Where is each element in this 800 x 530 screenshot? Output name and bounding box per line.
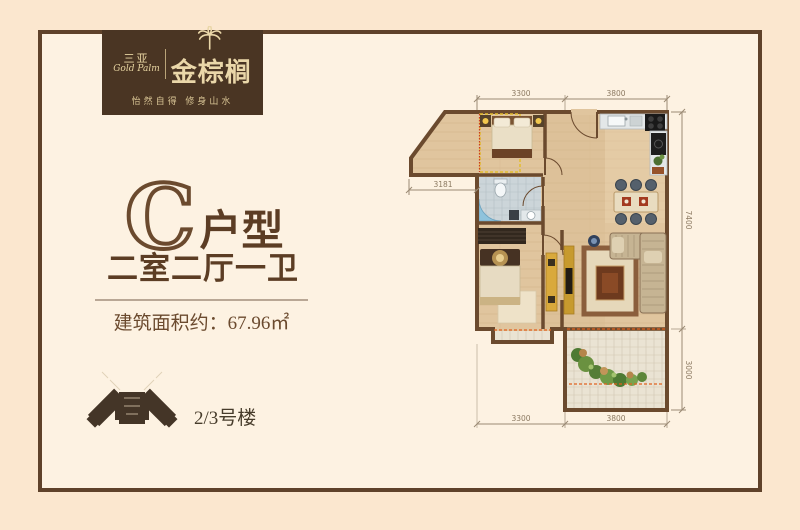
lamp-icon [483, 118, 489, 124]
kitchen-sink-icon [608, 116, 625, 126]
stool-icon [646, 180, 657, 191]
dining-table-icon [614, 192, 658, 212]
balcony-small [494, 331, 551, 341]
area-value: 67.96㎡ [228, 313, 290, 334]
dim-top-right: 3800 [606, 89, 625, 98]
brand-name-cn: 金棕榈 [171, 58, 252, 88]
dim-left: 3181 [433, 180, 452, 189]
stool-icon [631, 214, 642, 225]
stool-icon [616, 180, 627, 191]
dim-right-upper: 7400 [684, 210, 693, 229]
rooms-description: 二室二厅一卫 [88, 243, 318, 288]
stove-icon [645, 114, 665, 131]
flyer-page: 三亚 Gold Palm 金棕榈 [0, 0, 800, 530]
balcony-large [567, 331, 665, 408]
living-room-furniture [584, 233, 666, 314]
brand-tagline: 怡然自得 修身山水 [132, 94, 234, 107]
washer-icon [509, 210, 519, 220]
dining-furniture [614, 180, 658, 225]
stool-icon [616, 214, 627, 225]
divider-line [95, 299, 308, 301]
lamp-icon [536, 118, 542, 124]
area-text: 建筑面积约：67.96㎡ [95, 308, 308, 335]
dim-top-left: 3300 [511, 89, 530, 98]
dim-bottom-left: 3300 [511, 414, 530, 423]
oven-icon [651, 133, 666, 155]
floorplan: 3300 3800 3181 7400 3000 3300 3800 [390, 83, 705, 448]
brand-city: 三亚 [123, 53, 149, 65]
tv-icon [566, 268, 573, 294]
building-label: 2/3号楼 [194, 403, 256, 430]
bathroom [479, 177, 541, 221]
stool-icon [631, 180, 642, 191]
brand-name-en: Gold Palm [113, 65, 160, 75]
logo-divider [165, 49, 166, 79]
bed-icon [492, 116, 532, 158]
dim-right-lower: 3000 [684, 360, 693, 379]
dim-bottom-right: 3800 [606, 414, 625, 423]
bed-icon [480, 249, 520, 305]
sink-icon [527, 212, 535, 220]
toilet-icon [495, 183, 506, 197]
stool-icon [646, 214, 657, 225]
building-footprint-icon [86, 358, 178, 436]
brand-logo: 三亚 Gold Palm 金棕榈 [102, 30, 263, 115]
palm-tree-icon [197, 26, 223, 50]
wardrobe-icon [478, 228, 526, 244]
area-label: 建筑面积约： [114, 313, 228, 334]
